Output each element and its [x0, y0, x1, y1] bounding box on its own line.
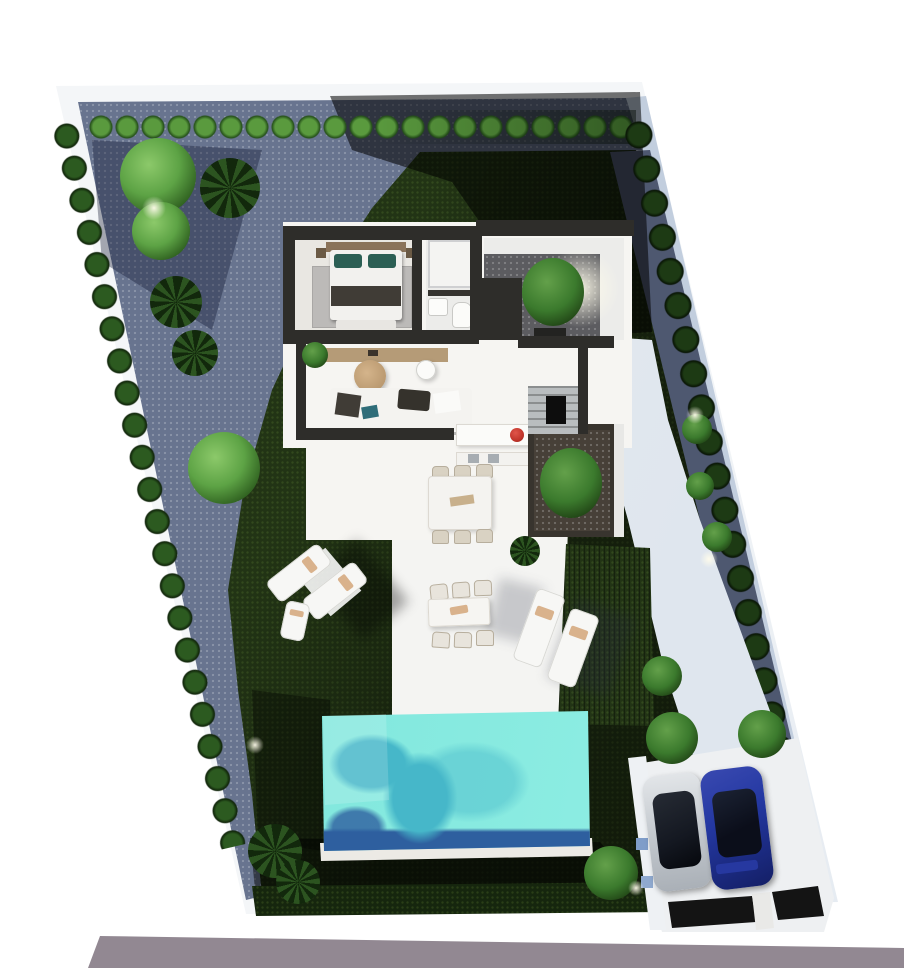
lounger-cushion	[337, 573, 354, 591]
planter-white-rim	[614, 424, 624, 537]
courtyard-tree	[522, 258, 584, 326]
garden-light-3	[686, 406, 704, 424]
red-cooking-pot	[510, 428, 524, 442]
stair-void	[546, 396, 566, 424]
lounger-cushion	[534, 605, 555, 621]
washbasin	[428, 298, 448, 316]
tree-driveway-right	[738, 710, 786, 758]
outdoor-chair-6	[476, 630, 494, 646]
wall-courtyard-top	[476, 220, 634, 236]
wall-hall-top	[518, 336, 614, 348]
sofa-throw-white	[433, 390, 462, 413]
shrub-right-3	[702, 522, 732, 552]
toilet	[452, 302, 472, 328]
chair-cushion	[289, 609, 304, 617]
bed-throw	[331, 286, 401, 306]
shrub-right-2	[686, 472, 714, 500]
nightstand-left	[316, 248, 326, 258]
dining-chair-6	[476, 529, 493, 543]
lounger-cushion	[568, 625, 589, 641]
wall-bed-bath-divider	[412, 238, 422, 332]
dining-chair-4	[432, 530, 449, 544]
sofa-cushion-dark-left	[335, 392, 362, 417]
bed-pillow-left	[334, 254, 362, 268]
garden-light-2	[246, 736, 264, 754]
sideboard-decor	[368, 350, 378, 356]
tree-driveway-left	[646, 712, 698, 764]
plant-below-planter	[510, 536, 540, 566]
site-plan-render	[0, 0, 904, 968]
bed-bench	[336, 320, 396, 329]
bathroom-dark-strip	[428, 290, 472, 296]
wall-bedroom-top	[283, 226, 479, 240]
wall-stair-side	[578, 348, 588, 434]
sofa-bag-dark	[397, 389, 431, 412]
planter-shrub	[540, 448, 602, 518]
wall-living-bottom	[296, 428, 454, 440]
dining-chair-5	[454, 530, 471, 544]
hedge-row-top	[88, 110, 636, 144]
outdoor-chair-3	[474, 580, 493, 597]
shower	[428, 240, 472, 288]
kitchen-sink-2	[488, 454, 499, 463]
plants-bottomleft-2	[276, 860, 320, 904]
garden-light-4	[700, 550, 718, 568]
garden-light-5	[628, 880, 644, 896]
palm-1	[200, 158, 260, 218]
wall-bedroom-left	[283, 226, 295, 344]
potted-plant-terrace	[642, 656, 682, 696]
wall-entry-block	[478, 278, 522, 340]
driveway-wall-accent-1	[636, 838, 648, 850]
tree-midleft	[188, 432, 260, 504]
bed-pillow-right	[368, 254, 396, 268]
palm-2	[150, 276, 202, 328]
garden-light-1	[142, 196, 166, 220]
car-blue-glass-roof	[711, 788, 763, 859]
plant-living-corner	[302, 342, 328, 368]
lounger-cushion	[301, 555, 318, 573]
outdoor-chair-5	[454, 632, 473, 649]
palm-3	[172, 330, 218, 376]
kitchen-sink-1	[468, 454, 479, 463]
outdoor-chair-2	[451, 581, 470, 598]
outdoor-chair-4	[431, 631, 450, 648]
floor-lamp	[416, 360, 436, 380]
